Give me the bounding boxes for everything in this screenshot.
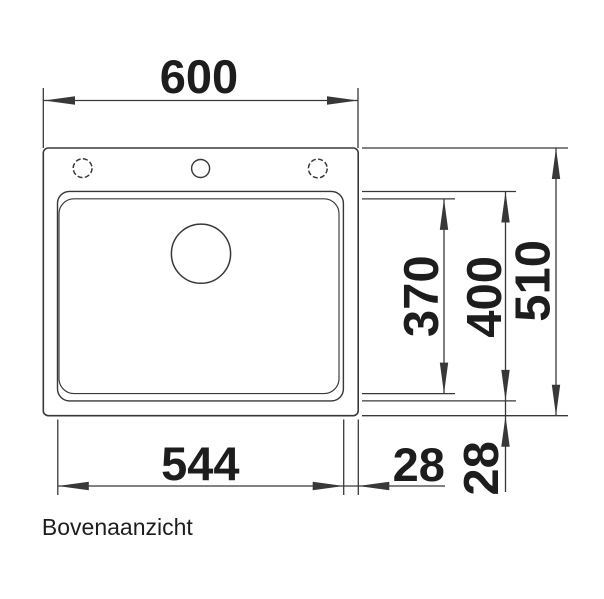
svg-text:28: 28 [393,438,445,491]
svg-text:28: 28 [455,441,509,496]
svg-text:544: 544 [161,437,239,490]
svg-text:370: 370 [395,255,449,337]
svg-text:510: 510 [507,240,561,322]
svg-text:600: 600 [160,50,238,103]
svg-text:400: 400 [458,256,512,338]
svg-text:Bovenaanzicht: Bovenaanzicht [42,514,193,540]
